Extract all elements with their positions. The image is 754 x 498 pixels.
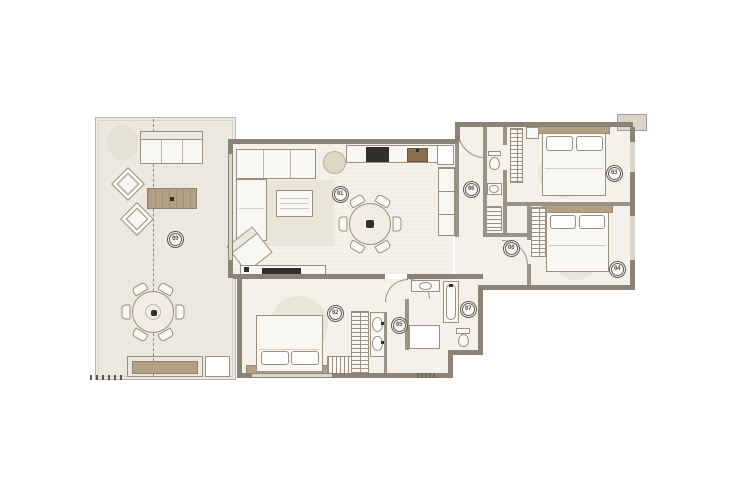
room-marker-09: 09 — [167, 231, 184, 248]
sliding-door-window — [229, 154, 232, 260]
ottoman-cushion — [117, 173, 140, 196]
hanger-rail — [360, 312, 361, 376]
window — [630, 142, 635, 172]
partition-wall — [503, 127, 507, 145]
faucet-icon — [416, 149, 419, 152]
room-marker-label: 02 — [332, 310, 338, 316]
room-marker-label: 01 — [337, 191, 343, 197]
table-knob — [170, 197, 174, 201]
hanger-rail — [517, 129, 518, 182]
partition-wall — [455, 142, 459, 237]
pillow — [576, 136, 603, 151]
wardrobe — [351, 311, 369, 377]
vent-grille — [417, 373, 437, 378]
partition-wall — [527, 264, 531, 285]
wall-segment — [228, 139, 458, 144]
floor-plan: 01 02 03 04 05 06 07 08 09 — [0, 0, 754, 498]
speaker-icon — [244, 267, 249, 272]
coffee-table — [276, 190, 313, 217]
blanket-seam — [259, 349, 320, 350]
wardrobe — [510, 128, 523, 183]
skylight-hatch — [205, 356, 230, 377]
window — [630, 216, 635, 260]
toilet-tank — [488, 151, 501, 156]
partition-wall — [503, 202, 631, 206]
nightstand — [526, 127, 539, 139]
room-marker-03: 03 — [606, 165, 623, 182]
room-marker-01: 01 — [332, 186, 349, 203]
table-centerpiece — [366, 220, 374, 228]
wall-segment — [455, 122, 633, 127]
coffee-table-slats — [280, 194, 309, 213]
chaise-seam — [239, 208, 264, 209]
partition-wall — [527, 206, 531, 240]
wall-segment — [407, 274, 483, 279]
dimension-ticks — [90, 375, 122, 380]
partition-wall — [384, 312, 387, 373]
table-centerpiece — [151, 310, 157, 316]
plant-icon — [107, 125, 138, 160]
room-marker-label: 04 — [614, 266, 620, 272]
room-marker-05: 05 — [391, 317, 408, 334]
sofa-back — [236, 149, 316, 179]
terrace-chair — [122, 305, 131, 320]
wall-segment — [237, 276, 242, 378]
toilet-icon — [489, 157, 500, 170]
bathtub-basin — [446, 284, 456, 320]
dining-chair — [339, 217, 348, 232]
room-marker-04: 04 — [609, 261, 626, 278]
room-marker-label: 07 — [465, 306, 471, 312]
room-marker-07: 07 — [460, 301, 477, 318]
terrace-planter — [132, 361, 198, 374]
window — [252, 374, 332, 377]
pillow — [550, 215, 576, 229]
room-marker-08: 08 — [503, 240, 520, 257]
ottoman-cushion — [126, 208, 149, 231]
room-marker-label: 08 — [508, 245, 514, 251]
toilet-icon — [458, 334, 469, 347]
room-marker-06: 06 — [463, 181, 480, 198]
terrace-sofa-back — [141, 132, 202, 140]
sink-hatch — [437, 145, 454, 165]
room-marker-label: 05 — [396, 322, 402, 328]
terrace-chair — [176, 305, 185, 320]
pouf — [323, 151, 346, 174]
bathtub — [443, 281, 459, 323]
wardrobe — [531, 207, 546, 257]
dining-chair — [393, 217, 402, 232]
room-marker-label: 09 — [172, 236, 178, 242]
hanger-rail — [539, 208, 540, 256]
blanket-seam — [545, 168, 603, 169]
room-marker-02: 02 — [327, 305, 344, 322]
pillow — [261, 351, 289, 365]
wall-segment — [448, 350, 483, 355]
room-marker-label: 06 — [468, 186, 474, 192]
shower — [409, 325, 440, 349]
pillow — [291, 351, 319, 365]
sink-bowl — [419, 282, 432, 290]
pillow — [546, 136, 573, 151]
washbasin-bowl — [489, 185, 499, 193]
faucet-icon — [449, 284, 453, 287]
wall-segment — [478, 285, 635, 290]
terrace-dining-table — [132, 291, 174, 333]
cooktop-icon — [366, 147, 389, 162]
room-marker-label: 03 — [611, 170, 617, 176]
terrace-sofa — [140, 131, 203, 164]
wall-segment — [233, 274, 385, 279]
wall-segment — [478, 288, 483, 355]
towel-radiator — [486, 206, 502, 231]
blanket-seam — [549, 245, 606, 246]
terrace-wood-table — [147, 188, 197, 209]
kitchen-tall-cabinets — [438, 167, 455, 236]
partition-wall — [483, 233, 531, 237]
partition-wall — [483, 127, 487, 233]
pillow — [579, 215, 605, 229]
